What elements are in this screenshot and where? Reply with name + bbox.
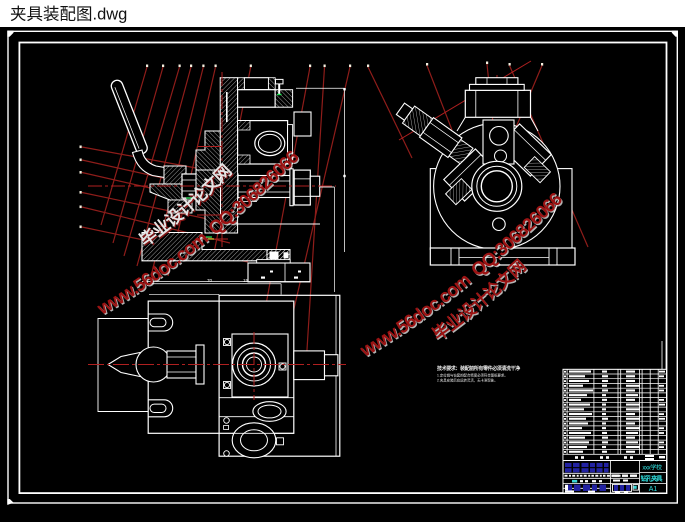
svg-text:xxx学校: xxx学校 xyxy=(642,464,661,472)
svg-text:70: 70 xyxy=(207,278,213,283)
svg-text:钻孔夹具: 钻孔夹具 xyxy=(641,474,664,483)
svg-text:技术要求：装配前所有零件必须清洗干净: 技术要求：装配前所有零件必须清洗干净 xyxy=(437,365,520,372)
svg-text:A1: A1 xyxy=(649,486,658,493)
svg-text:夹具装配图.dwg: 夹具装配图.dwg xyxy=(10,5,127,24)
svg-text:2.夹具安装后应运转灵活，无卡滞现象。: 2.夹具安装后应运转灵活，无卡滞现象。 xyxy=(437,378,497,383)
svg-text:15: 15 xyxy=(243,278,249,283)
svg-text:1.定位销与钻套的配合精度必须符合图纸要求。: 1.定位销与钻套的配合精度必须符合图纸要求。 xyxy=(437,373,508,378)
